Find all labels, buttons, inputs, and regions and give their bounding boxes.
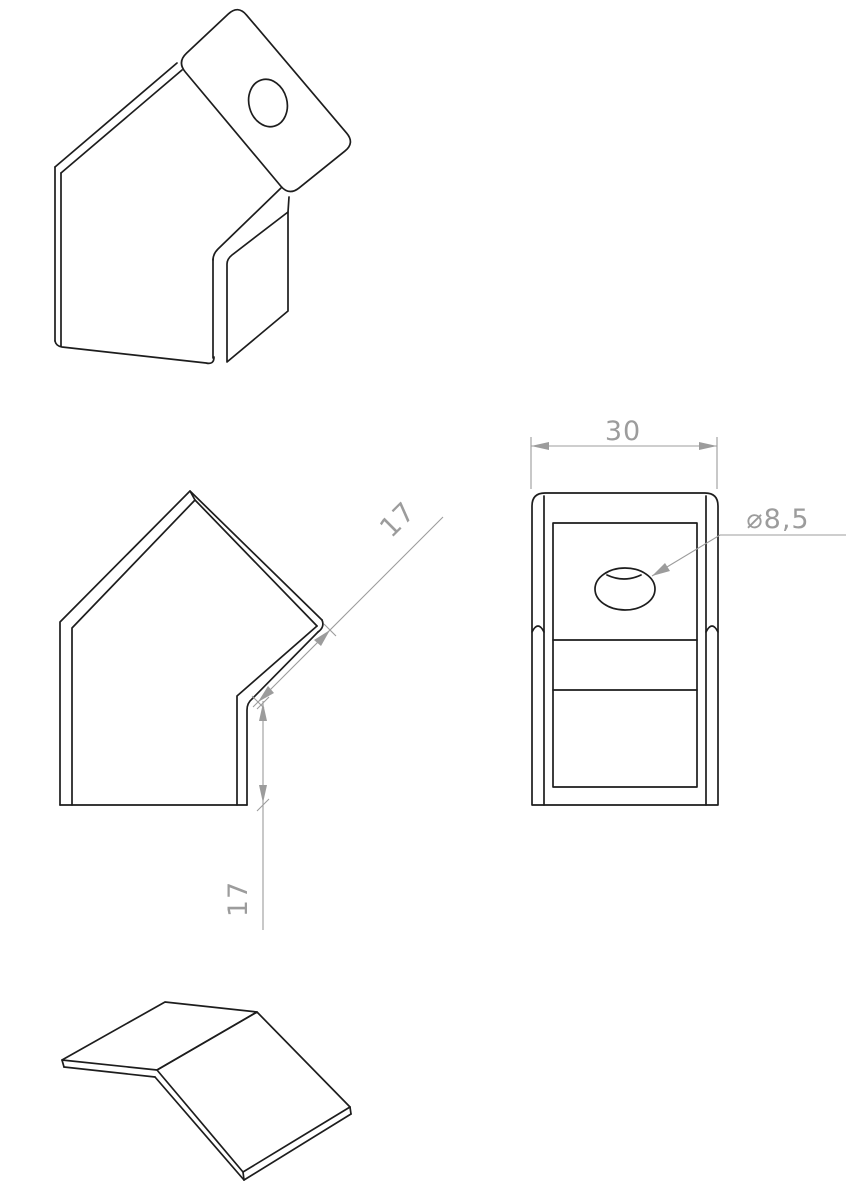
outline-outer	[60, 491, 322, 805]
bend-tangent-arc-right	[706, 626, 718, 632]
bend-edge-inner	[61, 70, 182, 173]
thickness-edge-bottom	[244, 1114, 351, 1180]
bend-edge-outer	[55, 63, 177, 167]
mounting-hole	[243, 75, 292, 131]
flange-inner-edge	[237, 626, 317, 805]
dimension-line-diagonal	[253, 517, 443, 707]
bend-tangent-arc-left	[532, 626, 544, 632]
width-dimension-label: 30	[605, 416, 641, 447]
side-face	[227, 212, 288, 362]
leader-line	[652, 535, 846, 576]
mounting-hole-front	[595, 568, 655, 610]
width-dimension: 30	[531, 416, 717, 489]
left-tip-edge	[62, 1060, 64, 1067]
angled-flange-plate	[181, 10, 350, 192]
upper-plate-face	[62, 1002, 257, 1070]
hole-diameter-dimension: ⌀8,5	[652, 504, 846, 576]
corner-connector-edge	[288, 197, 289, 212]
lower-plate-face	[157, 1012, 350, 1172]
iso-view-top	[55, 10, 350, 364]
hole-far-edge-arc	[607, 575, 641, 579]
bottom-edge	[55, 341, 214, 363]
outer-outline	[532, 493, 718, 805]
flange-length-dimension: 17	[252, 496, 443, 708]
flange-outer-edge	[247, 632, 318, 805]
flange-thickness-edge	[213, 188, 281, 260]
iso-view-bottom	[62, 1002, 351, 1180]
bottom-tip-edge	[243, 1172, 244, 1180]
height-dimension: 17	[223, 697, 269, 930]
thickness-edge-right	[155, 1077, 244, 1180]
profile-view	[60, 491, 323, 805]
leader-arrowhead	[652, 563, 670, 576]
front-view	[532, 493, 718, 805]
hole-diameter-label: ⌀8,5	[746, 504, 809, 535]
arrowhead-bottom	[259, 785, 267, 803]
arrowhead-right	[699, 442, 717, 450]
inner-panel	[553, 523, 697, 787]
flange-end-cap	[318, 620, 323, 632]
right-tip-edge	[350, 1107, 351, 1114]
arrowhead-left	[531, 442, 549, 450]
flange-length-label: 17	[374, 496, 422, 544]
outline-inner	[72, 500, 317, 805]
leg-height-label: 17	[223, 881, 254, 917]
drawing-sheet: 30 ⌀8,5 17 17	[0, 0, 851, 1200]
technical-drawing-canvas: 30 ⌀8,5 17 17	[0, 0, 851, 1200]
